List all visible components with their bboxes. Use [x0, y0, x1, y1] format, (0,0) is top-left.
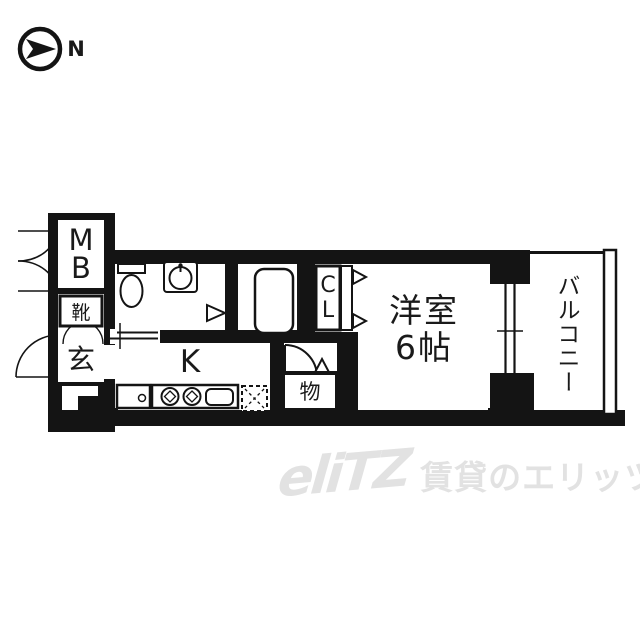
main-room-name: 洋室: [389, 293, 459, 330]
wash-basin-icon: [164, 262, 197, 292]
balcony-label: バルコニー: [544, 258, 588, 410]
meter-box-label: M B: [58, 221, 104, 288]
window: [497, 284, 523, 373]
kitchen-counter: [117, 385, 238, 408]
wall-step: [78, 396, 98, 410]
balcony-railing: [604, 250, 616, 414]
watermark: eliTZ 賃貸のエリッツ: [279, 444, 640, 504]
toilet-icon: [118, 264, 145, 307]
closet-label: C L: [316, 267, 340, 329]
main-room-size: 6帖: [395, 330, 453, 367]
watermark-text: 賃貸のエリッツ: [420, 451, 640, 504]
watermark-logo: eliTZ: [276, 438, 412, 509]
kitchen-label: K: [155, 342, 225, 382]
compass-icon: [20, 29, 60, 69]
bathtub-icon: [255, 269, 293, 333]
shoe-cabinet-label: 靴: [60, 296, 102, 326]
floor-plan-page: N M B 靴 玄 K 物 C L 洋室 6帖 バルコニー eliTZ 賃貸のエ…: [0, 0, 640, 640]
storage-label: 物: [283, 374, 337, 408]
kitchen-sink-icon: [206, 389, 233, 405]
main-room-label: 洋室 6帖: [358, 282, 490, 378]
entrance-label: 玄: [58, 336, 104, 380]
compass-north-label: N: [63, 35, 89, 63]
refrigerator-space-icon: [242, 386, 267, 411]
